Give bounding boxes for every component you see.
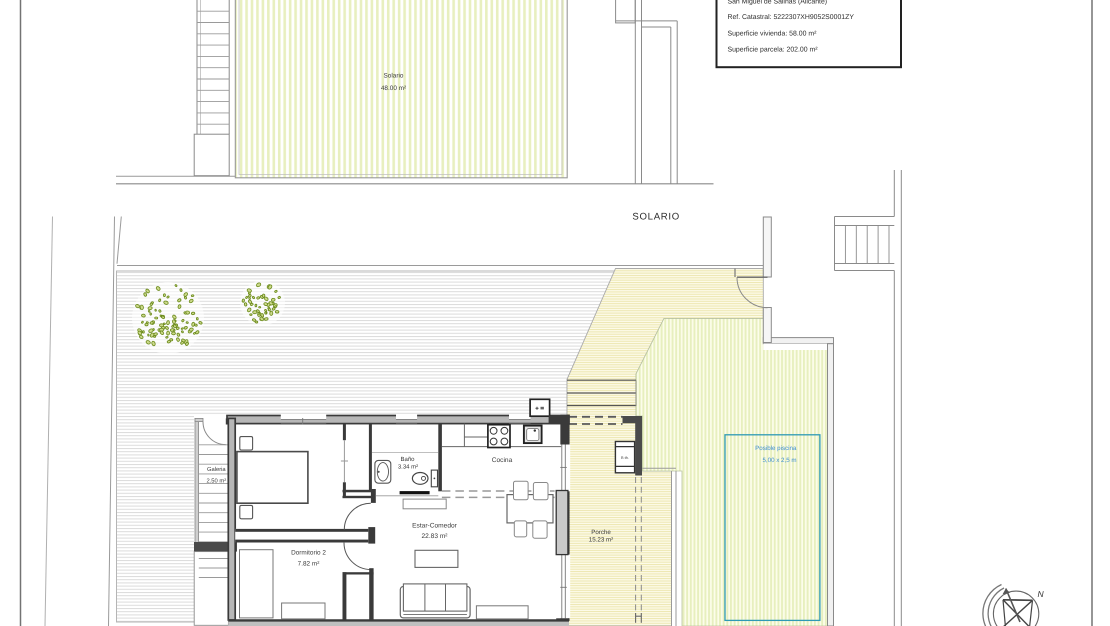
svg-text:Cocina: Cocina (492, 457, 513, 464)
svg-text:Posible piscina: Posible piscina (755, 445, 797, 452)
svg-text:Solario: Solario (384, 73, 404, 80)
svg-text:15.23 m²: 15.23 m² (589, 537, 613, 544)
svg-text:San Miguel de Salinas (Alicant: San Miguel de Salinas (Alicante) (728, 0, 828, 5)
svg-text:Superficie vivienda: 58.00 m²: Superficie vivienda: 58.00 m² (728, 30, 818, 37)
svg-text:48.00 m²: 48.00 m² (381, 85, 406, 92)
svg-text:Superficie parcela: 202.00 m²: Superficie parcela: 202.00 m² (728, 47, 819, 54)
svg-text:2.50 m²: 2.50 m² (206, 478, 226, 485)
svg-text:Ref. Catastral: 5222307XH9052S: Ref. Catastral: 5222307XH9052S0001ZY (728, 14, 855, 21)
svg-text:B-th.: B-th. (621, 456, 629, 460)
svg-text:Dormitorio 2: Dormitorio 2 (291, 550, 326, 557)
svg-text:Baño: Baño (400, 456, 415, 463)
svg-text:22.83 m²: 22.83 m² (421, 533, 448, 540)
svg-text:7.82 m²: 7.82 m² (298, 560, 320, 567)
svg-text:5,00 x 2,5 m: 5,00 x 2,5 m (762, 457, 796, 464)
svg-text:Porche: Porche (591, 529, 611, 536)
svg-text:Estar-Comedor: Estar-Comedor (412, 523, 458, 530)
svg-text:3.34 m²: 3.34 m² (398, 463, 418, 470)
svg-text:Galeria: Galeria (207, 466, 226, 473)
svg-text:N: N (1038, 589, 1045, 599)
svg-text:SOLARIO: SOLARIO (632, 212, 680, 223)
